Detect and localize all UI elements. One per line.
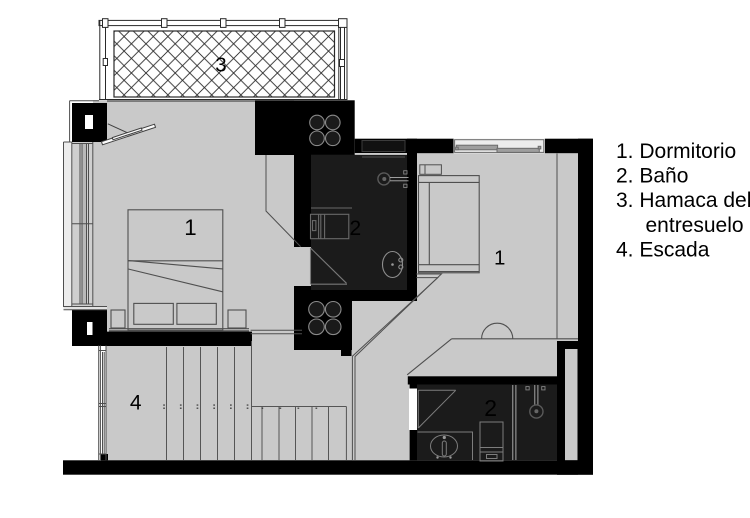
svg-text:1: 1 [184,215,196,240]
svg-text:4: 4 [130,392,142,415]
svg-text:2: 2 [484,395,497,421]
svg-text:entresuelo: entresuelo [646,214,744,237]
svg-text:4. Escada: 4. Escada [616,239,710,262]
svg-text:3: 3 [215,54,226,77]
svg-text:1: 1 [494,247,505,270]
svg-text:1. Dormitorio: 1. Dormitorio [616,140,736,163]
svg-text:2: 2 [349,217,361,240]
svg-text:3. Hamaca del: 3. Hamaca del [616,189,750,212]
svg-text:2. Baño: 2. Baño [616,165,688,188]
